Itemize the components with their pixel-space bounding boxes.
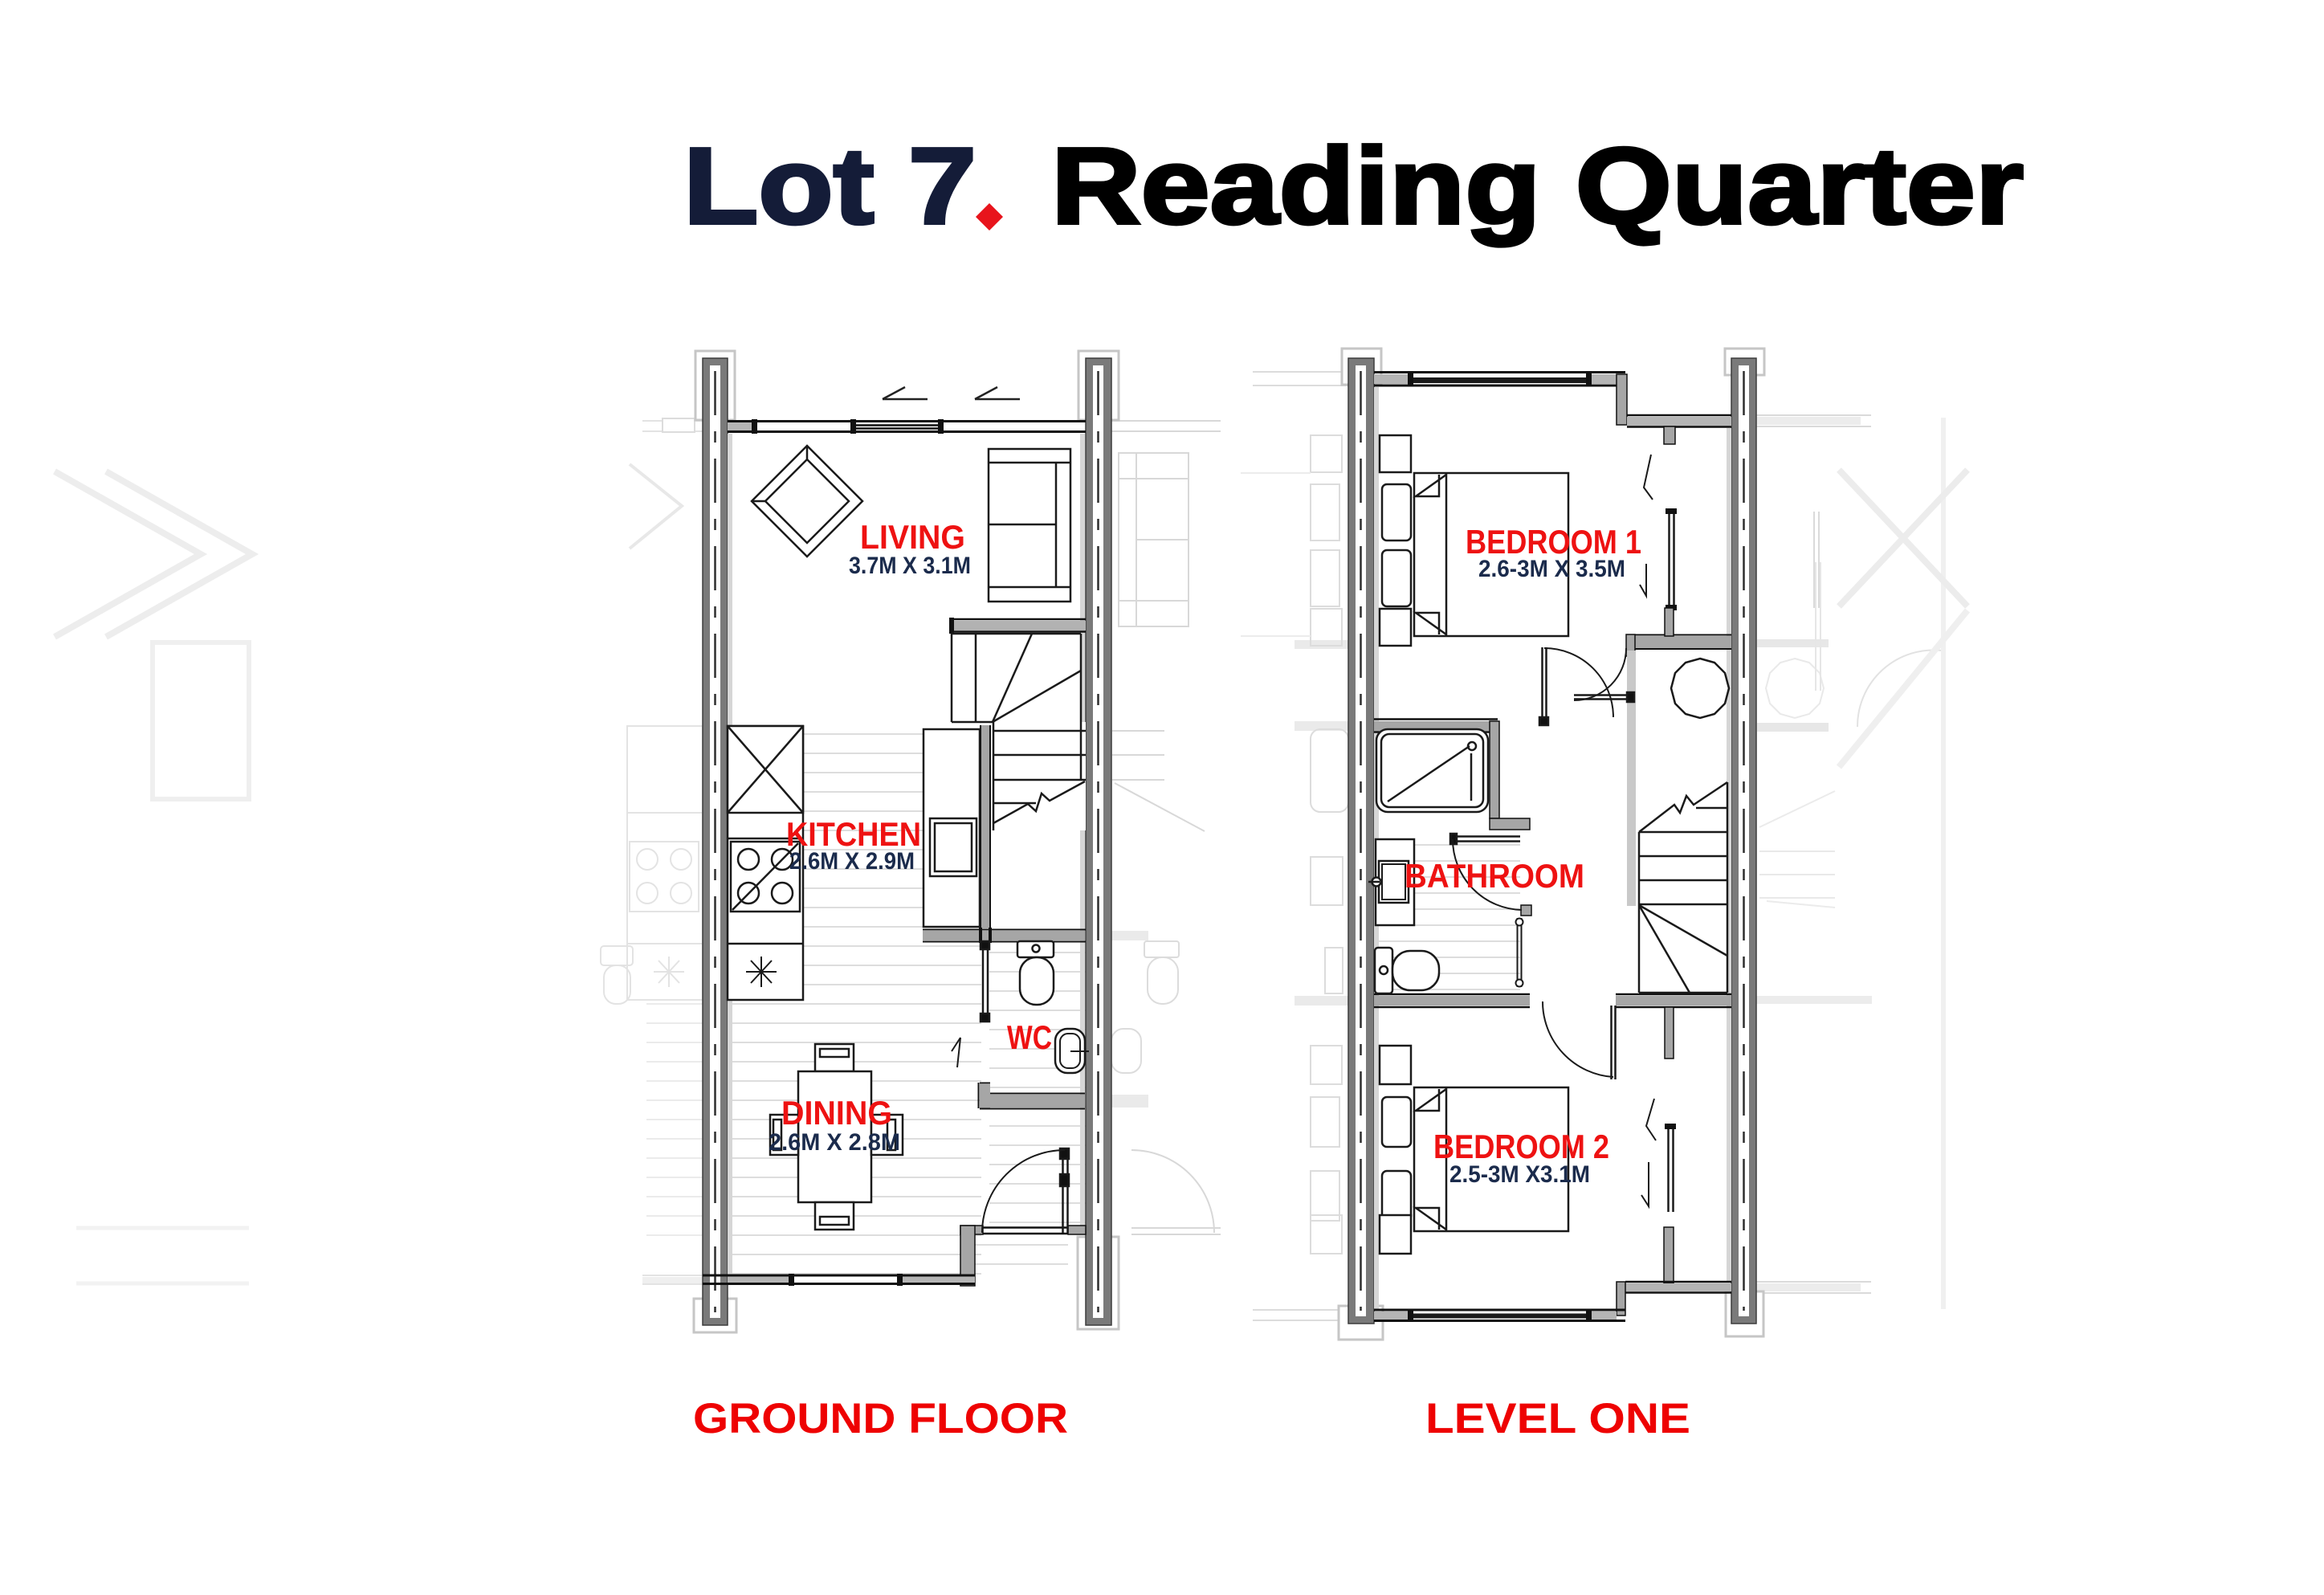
svg-text:LEVEL ONE: LEVEL ONE xyxy=(1425,1395,1690,1442)
svg-text:2.5-3M X3.1M: 2.5-3M X3.1M xyxy=(1449,1161,1590,1188)
svg-text:KITCHEN: KITCHEN xyxy=(786,815,921,853)
svg-text:2.6M X 2.8M: 2.6M X 2.8M xyxy=(769,1129,900,1156)
svg-text:Reading Quarter: Reading Quarter xyxy=(1051,125,2024,247)
svg-text:DINING: DINING xyxy=(781,1094,892,1132)
svg-text:BEDROOM 2: BEDROOM 2 xyxy=(1433,1128,1609,1165)
svg-text:BEDROOM 1: BEDROOM 1 xyxy=(1466,523,1641,561)
svg-text:Lot 7: Lot 7 xyxy=(683,125,976,247)
svg-text:GROUND FLOOR: GROUND FLOOR xyxy=(693,1395,1068,1442)
svg-text:2.6-3M X 3.5M: 2.6-3M X 3.5M xyxy=(1478,556,1625,582)
svg-text:BATHROOM: BATHROOM xyxy=(1405,857,1584,895)
svg-text:2.6M X 2.9M: 2.6M X 2.9M xyxy=(789,848,915,875)
svg-text:LIVING: LIVING xyxy=(860,518,965,556)
svg-text:3.7M X 3.1M: 3.7M X 3.1M xyxy=(849,553,971,579)
svg-text:WC: WC xyxy=(1007,1018,1052,1056)
